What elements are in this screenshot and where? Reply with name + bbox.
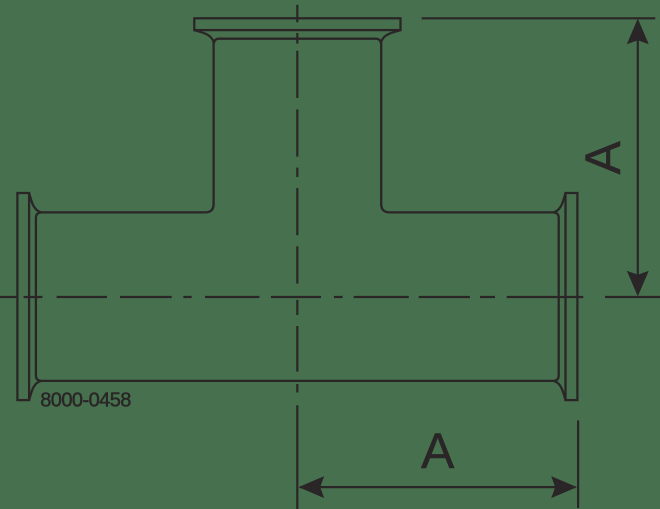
- svg-text:A: A: [575, 140, 631, 174]
- svg-text:A: A: [421, 423, 455, 479]
- svg-text:8000-0458: 8000-0458: [40, 390, 131, 412]
